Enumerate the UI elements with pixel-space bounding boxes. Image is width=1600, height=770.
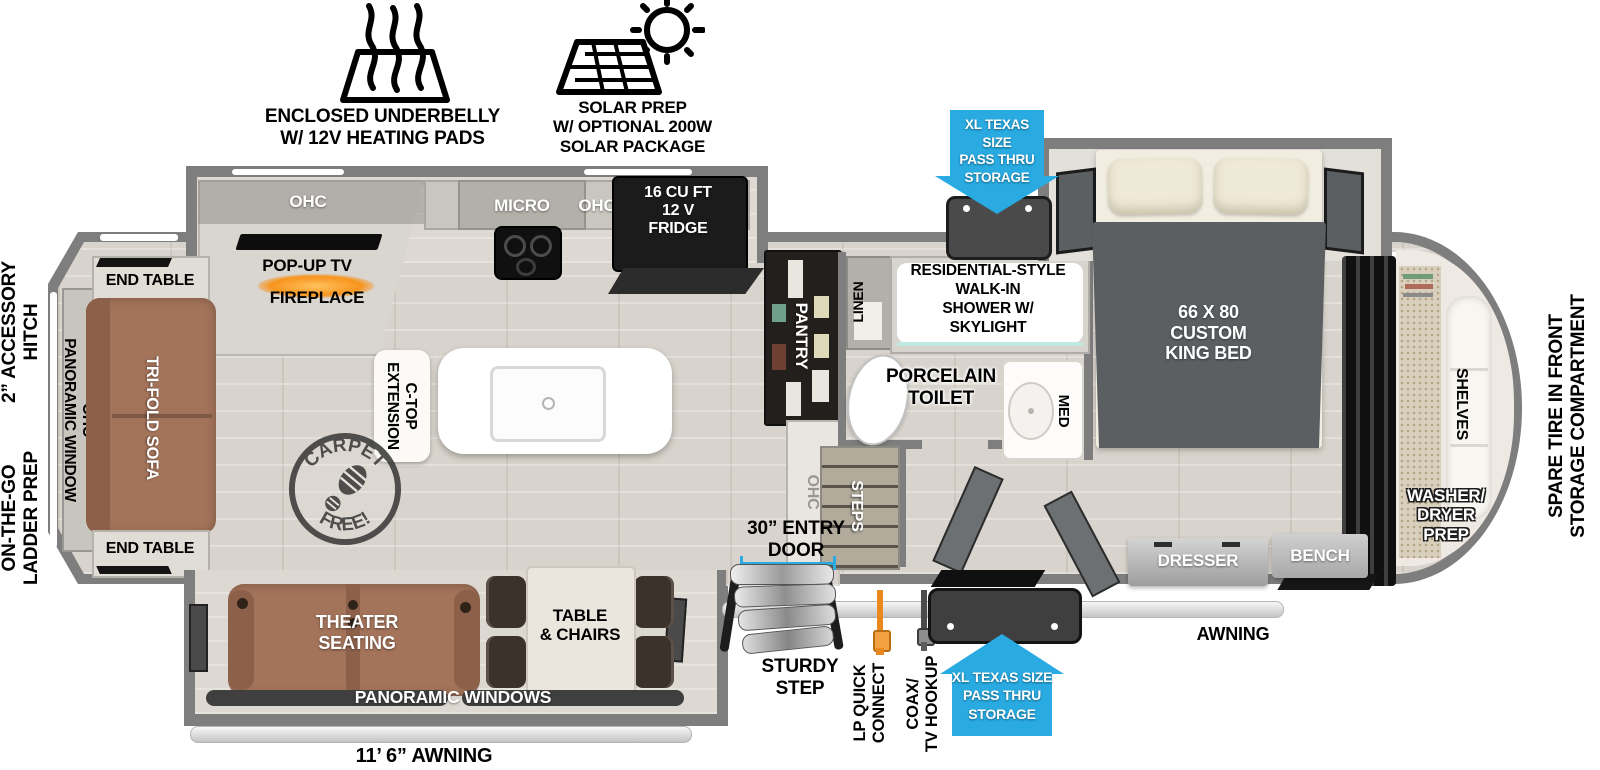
pop-up-tv-label: POP-UP TV bbox=[242, 256, 372, 275]
front-awning-label: AWNING bbox=[1178, 624, 1288, 645]
pantry-item bbox=[814, 334, 829, 358]
dresser-handle bbox=[1222, 542, 1240, 547]
screw bbox=[947, 623, 954, 630]
dinette-chair bbox=[634, 576, 674, 628]
dinette-chair bbox=[486, 576, 526, 628]
bedroom-window-left bbox=[1056, 168, 1096, 255]
shelves-label: SHELVES bbox=[1452, 329, 1470, 479]
toilet-label: PORCELAIN TOILET bbox=[872, 366, 1010, 409]
end-table-top-slab bbox=[96, 258, 172, 267]
slide-end-window-left bbox=[189, 604, 208, 672]
cupholder bbox=[460, 602, 471, 613]
kitchen-slide-window bbox=[584, 169, 692, 175]
main-awning-bar bbox=[190, 726, 692, 743]
floorplan-canvas: ENCLOSED UNDERBELLY W/ 12V HEATING PADS … bbox=[0, 0, 1600, 770]
main-awning-label: 11’ 6” AWNING bbox=[324, 745, 524, 768]
hanger-gray bbox=[1403, 293, 1433, 297]
hanger-red bbox=[1405, 284, 1433, 289]
sofa-backrest bbox=[86, 298, 110, 534]
end-table-bottom-slab bbox=[96, 566, 172, 574]
sink-drain bbox=[542, 397, 555, 410]
bedroom-window-right bbox=[1324, 168, 1364, 255]
burner bbox=[516, 258, 536, 276]
carpet-free-badge: CARPET FREE! bbox=[286, 430, 404, 548]
dresser-handle bbox=[1154, 542, 1172, 547]
step-tread bbox=[730, 564, 834, 585]
solar-label: SOLAR PREP W/ OPTIONAL 200W SOLAR PACKAG… bbox=[525, 98, 740, 156]
entry-steps bbox=[724, 564, 840, 656]
coax-hookup-line bbox=[921, 590, 927, 630]
screw bbox=[1051, 623, 1058, 630]
bench-label: BENCH bbox=[1276, 546, 1364, 565]
spare-tire-label: SPARE TIRE IN FRONT STORAGE COMPARTMENT bbox=[1546, 256, 1594, 576]
shower-label: RESIDENTIAL-STYLE WALK-IN SHOWER W/ SKYL… bbox=[898, 262, 1078, 338]
ladder-prep-label: ON-THE-GO LADDER PREP bbox=[0, 418, 45, 618]
sturdy-step-label: STURDY STEP bbox=[730, 656, 870, 699]
lp-quick-connect-line bbox=[877, 590, 883, 634]
panoramic-windows-label: PANORAMIC WINDOWS bbox=[328, 688, 578, 708]
pantry-item bbox=[812, 370, 829, 402]
refrigerator-base bbox=[608, 268, 764, 294]
pantry-label: PANTRY bbox=[791, 261, 811, 411]
dresser-label: DRESSER bbox=[1134, 551, 1262, 570]
bottom-tinted-window bbox=[931, 570, 1046, 587]
cooktop bbox=[494, 226, 562, 280]
theater-seating-label: THEATER SEATING bbox=[292, 612, 422, 653]
rear-top-wall-window bbox=[100, 234, 178, 241]
island-sink bbox=[490, 366, 606, 442]
bed-pillow-left bbox=[1108, 157, 1203, 215]
end-table-top-label: END TABLE bbox=[94, 272, 206, 290]
dinette-chair bbox=[486, 636, 526, 688]
pop-up-tv bbox=[235, 234, 382, 250]
cupholder bbox=[237, 598, 248, 609]
pass-thru-top-label: XL TEXAS SIZE PASS THRU STORAGE bbox=[950, 116, 1044, 186]
hanger-green bbox=[1403, 274, 1433, 279]
washer-dryer-label: WASHER/ DRYER PREP bbox=[1398, 486, 1494, 544]
shower-glass bbox=[897, 342, 1083, 346]
pantry-item bbox=[772, 304, 786, 322]
living-ohc-label: OHC bbox=[268, 192, 348, 211]
end-table-bottom-label: END TABLE bbox=[94, 540, 206, 558]
tri-fold-sofa-label: TRI-FOLD SOFA bbox=[141, 303, 161, 533]
closet-hanger-marks bbox=[1403, 272, 1437, 298]
pass-thru-bottom-label: XL TEXAS SIZE PASS THRU STORAGE bbox=[950, 668, 1054, 723]
king-bed-label: 66 X 80 CUSTOM KING BED bbox=[1136, 302, 1281, 364]
burner bbox=[530, 235, 552, 257]
accessory-hitch-label: 2” ACCESSORY HITCH bbox=[0, 232, 45, 432]
lp-quick-connect-label: LP QUICK CONNECT bbox=[851, 651, 891, 755]
bath-left-wall bbox=[838, 252, 846, 448]
pantry-item bbox=[814, 296, 829, 318]
underbelly-label: ENCLOSED UNDERBELLY W/ 12V HEATING PADS bbox=[245, 106, 520, 149]
table-chairs-label: TABLE & CHAIRS bbox=[530, 606, 630, 645]
bed-pillow-right bbox=[1214, 157, 1309, 215]
heated-underbelly-icon bbox=[305, 0, 470, 106]
linen-label: LINEN bbox=[851, 260, 867, 344]
kitchen-slide-window bbox=[232, 169, 344, 175]
pantry-item bbox=[772, 344, 786, 370]
burner bbox=[504, 235, 526, 257]
cupholder bbox=[348, 600, 358, 610]
sofa-cushion-divider bbox=[112, 414, 212, 418]
solar-prep-icon bbox=[555, 0, 705, 98]
coax-hookup-label: COAX/ TV HOOKUP bbox=[904, 646, 944, 762]
micro-label: MICRO bbox=[482, 196, 562, 215]
sink-drain bbox=[1028, 408, 1034, 414]
vanity-sink bbox=[1008, 382, 1054, 440]
med-cabinet-label: MED bbox=[1056, 369, 1072, 453]
dinette-chair bbox=[634, 636, 674, 688]
fireplace-label: FIREPLACE bbox=[250, 288, 384, 307]
entry-door-label: 30” ENTRY DOOR bbox=[722, 518, 870, 561]
fridge-label: 16 CU FT 12 V FRIDGE bbox=[614, 184, 742, 239]
